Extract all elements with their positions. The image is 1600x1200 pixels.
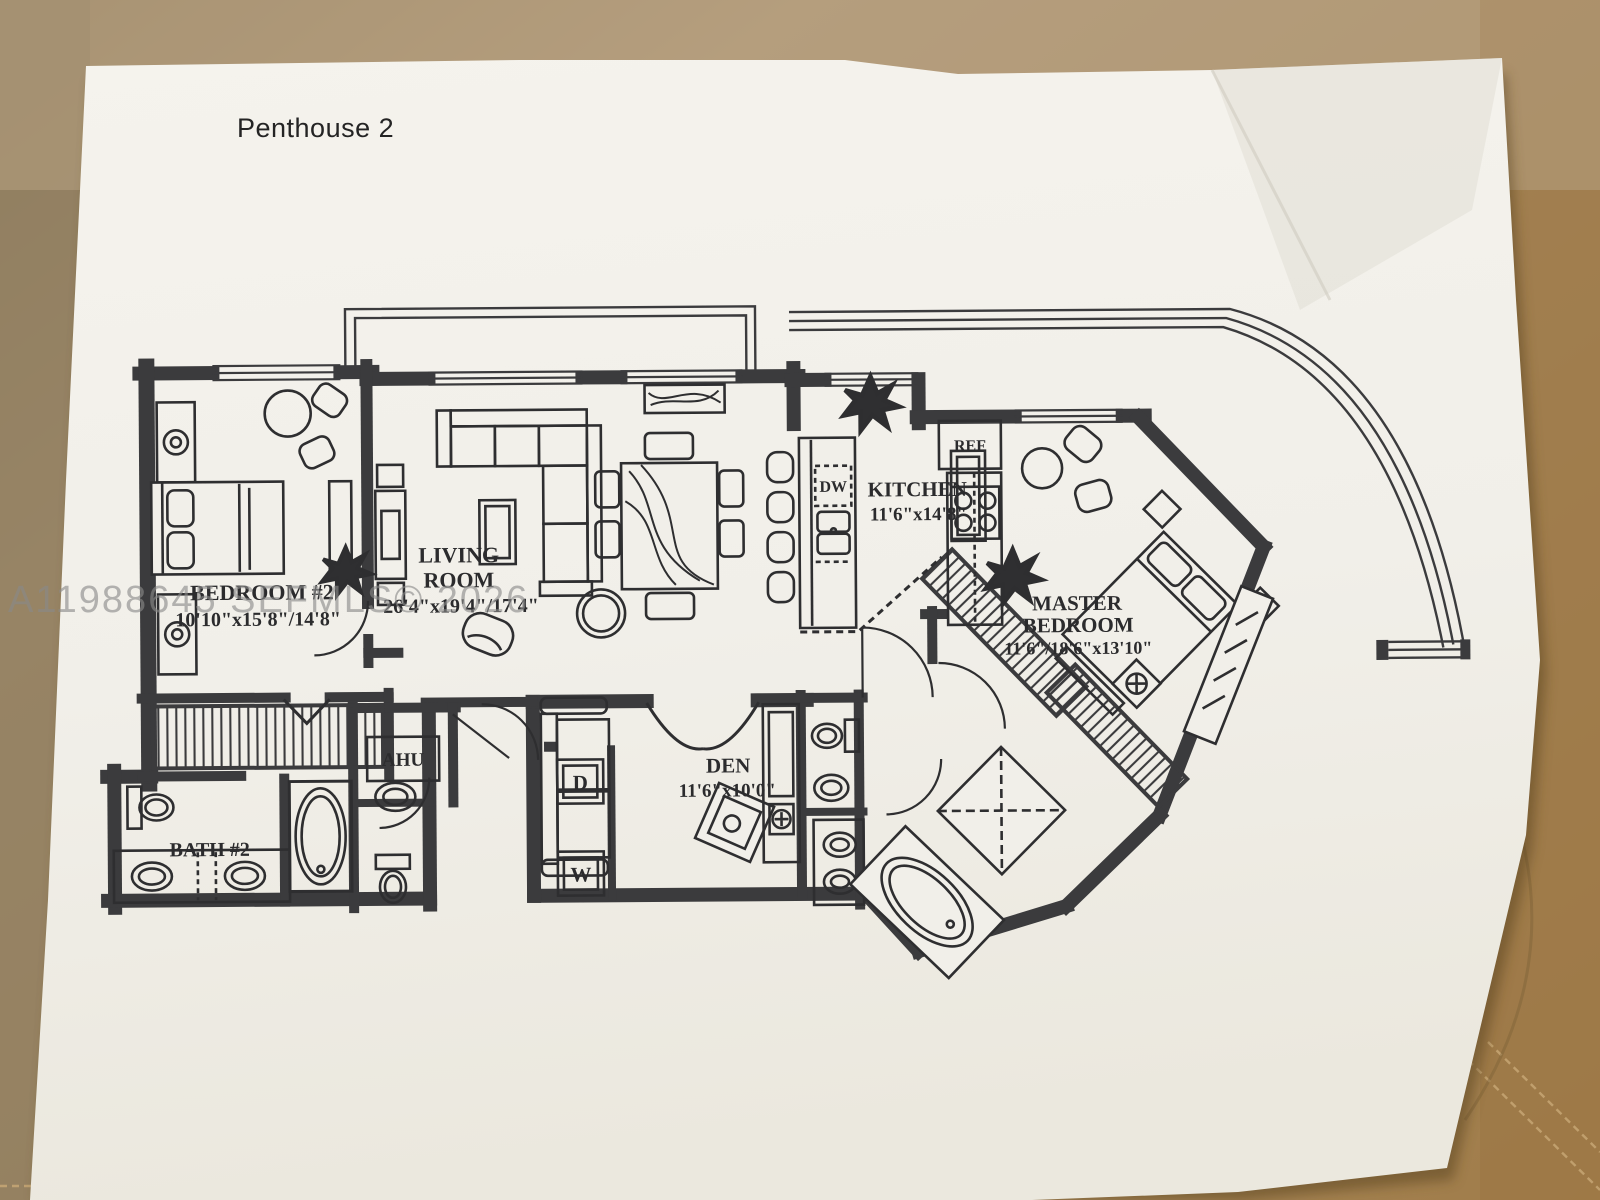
page-title: Penthouse 2 <box>237 113 394 143</box>
floorplan-photo: BEDROOM #2 10'10"x15'8"/14'8" LIVING ROO… <box>0 0 1600 1200</box>
room-label-master-1: MASTER <box>1032 591 1123 616</box>
label-ahu: AHU <box>382 750 425 771</box>
kitchen-island-icon <box>799 438 856 628</box>
room-dims-master: 11'6"/18'6"x13'10" <box>1004 638 1152 659</box>
room-dims-den: 11'6"x10'0" <box>679 780 776 802</box>
balcony-end-cap <box>1376 640 1388 660</box>
room-dims-kitchen: 11'6"x14'8" <box>870 504 967 526</box>
photo-of-floor-plan: BEDROOM #2 10'10"x15'8"/14'8" LIVING ROO… <box>0 0 1600 1200</box>
dining-table-icon <box>621 463 718 590</box>
room-label-den: DEN <box>706 753 751 777</box>
closet-hatch-bedroom2 <box>153 705 383 769</box>
balcony-end-cap <box>1460 639 1470 659</box>
label-washer: W <box>570 862 591 886</box>
bed-icon <box>151 482 284 575</box>
mls-watermark: A11988645 SEFMLS© 2026 <box>8 579 529 621</box>
room-label-kitchen: KITCHEN <box>868 477 967 502</box>
room-label-master-2: BEDROOM <box>1023 613 1134 638</box>
room-label-living-1: LIVING <box>418 542 499 568</box>
label-dw: DW <box>819 479 847 496</box>
room-label-bath2: BATH #2 <box>170 839 250 862</box>
label-dryer: D <box>573 770 588 794</box>
label-ref: REF <box>954 438 986 455</box>
